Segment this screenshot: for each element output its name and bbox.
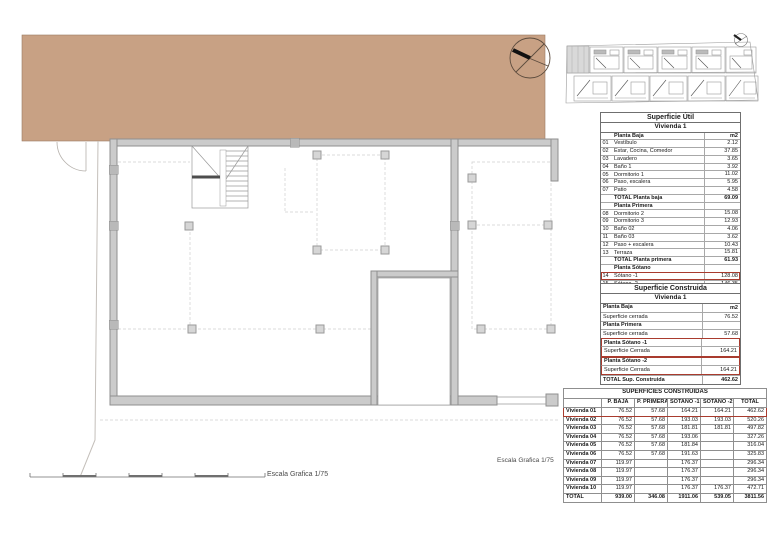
cell-sotano-2: [701, 468, 734, 477]
cell-total: 296.34: [734, 459, 767, 468]
table-row: TOTAL Planta baja 69.09: [601, 194, 740, 202]
row-label: Sótano -1: [614, 273, 704, 280]
cell-sotano-2: [701, 433, 734, 442]
col-header: SÓTANO -1: [668, 398, 701, 408]
row-label: Planta Sótano: [614, 265, 704, 272]
cell-sotano-1: 193.06: [668, 433, 701, 442]
table-row: Planta Sótano -1: [601, 338, 740, 346]
row-value: 12.93: [704, 218, 740, 225]
row-label: Dormitorio 2: [614, 211, 704, 218]
table-row: 10 Baño 02 4.06: [601, 225, 740, 233]
table-row: Vivienda 06 76.52 57.68 191.63 325.83: [564, 450, 767, 459]
table-row: Superficie Cerrada 164.21: [601, 346, 740, 356]
row-value: 76.52: [702, 313, 740, 321]
dashed-guides: [100, 155, 560, 420]
row-name: Vivienda 02: [564, 416, 602, 425]
table-subtitle: Vivienda 1: [601, 294, 740, 304]
table-row: Vivienda 10 119.97 176.37 176.37 472.71: [564, 485, 767, 494]
table-title: Superficie Útil: [601, 113, 740, 123]
row-value: 164.21: [701, 366, 739, 374]
cell-sotano-1: 176.37: [668, 459, 701, 468]
cell-total: 497.82: [734, 425, 767, 434]
row-name: Vivienda 01: [564, 408, 602, 417]
col-header: P. PRIMERA: [635, 398, 668, 408]
cell-total: 316.04: [734, 442, 767, 451]
table-row: 01 Vestíbulo 2.12: [601, 139, 740, 147]
row-label: Planta Baja: [601, 304, 702, 311]
row-value: m2: [702, 304, 740, 312]
row-value: 15.08: [704, 210, 740, 217]
scale-bar: [30, 473, 265, 477]
row-value: [701, 358, 739, 365]
cell-p-baja: 76.52: [602, 408, 635, 417]
cell-sotano-2: 193.03: [701, 416, 734, 425]
row-name: TOTAL: [564, 493, 602, 502]
table-row: Planta Sótano: [601, 264, 740, 272]
row-value: 69.09: [704, 195, 740, 202]
table-row: Planta Primera: [601, 321, 740, 329]
table-row: 13 Terraza 15.81: [601, 248, 740, 256]
site-houses-top-row: [590, 47, 756, 73]
row-value: 15.81: [704, 249, 740, 256]
cell-p-primera: 57.68: [635, 450, 668, 459]
cell-total: 462.62: [734, 408, 767, 417]
cell-sotano-2: [701, 459, 734, 468]
table-row: Vivienda 09 119.97 176.37 296.34: [564, 476, 767, 485]
row-label: Planta Sótano -1: [602, 340, 701, 347]
cell-sotano-2: 164.21: [701, 408, 734, 417]
cell-sotano-2: 181.81: [701, 425, 734, 434]
cell-p-primera: [635, 476, 668, 485]
row-label: Terraza: [614, 250, 704, 257]
table-row: Superficie Cerrada 164.21: [601, 365, 740, 375]
row-label: Vestíbulo: [614, 140, 704, 147]
table-row: 08 Dormitorio 2 15.08: [601, 209, 740, 217]
row-label: Baño 03: [614, 234, 704, 241]
row-number: 02: [601, 148, 614, 155]
cell-total: 472.71: [734, 485, 767, 494]
superficie-construida-table: Superficie Construida Vivienda 1 Planta …: [600, 283, 741, 385]
cell-p-primera: 346.08: [635, 493, 668, 502]
table-row: Vivienda 01 76.52 57.68 164.21 164.21 46…: [564, 408, 767, 417]
cell-p-primera: 57.68: [635, 442, 668, 451]
row-value: 37.85: [704, 148, 740, 155]
row-number: 09: [601, 218, 614, 225]
row-label: Superficie Cerrada: [602, 367, 701, 374]
table-row: 12 Paso + escalera 10.43: [601, 241, 740, 249]
table-row: Vivienda 03 76.52 57.68 181.81 181.81 49…: [564, 425, 767, 434]
table-row: Vivienda 02 76.52 57.68 193.03 193.03 52…: [564, 416, 767, 425]
cell-total: 3811.56: [734, 493, 767, 502]
col-header: SÓTANO -2: [701, 398, 734, 408]
row-number: 07: [601, 187, 614, 194]
row-name: Vivienda 06: [564, 450, 602, 459]
table-row: Vivienda 05 76.52 57.68 181.84 316.04: [564, 442, 767, 451]
cell-p-primera: [635, 468, 668, 477]
cell-sotano-1: 181.81: [668, 425, 701, 434]
table-row: 03 Lavadero 3.65: [601, 155, 740, 163]
row-number: 08: [601, 211, 614, 218]
row-label: Planta Sótano -2: [602, 358, 701, 365]
cell-p-baja: 76.52: [602, 433, 635, 442]
cell-p-baja: 76.52: [602, 442, 635, 451]
table-row: Planta Primera: [601, 202, 740, 210]
cell-sotano-1: 176.37: [668, 485, 701, 494]
row-name: Vivienda 03: [564, 425, 602, 434]
site-plan: [566, 34, 758, 104]
row-value: 4.06: [704, 226, 740, 233]
row-value: [702, 322, 740, 329]
cell-p-primera: [635, 459, 668, 468]
cell-sotano-2: 176.37: [701, 485, 734, 494]
row-label: Dormitorio 1: [614, 172, 704, 179]
cell-sotano-2: 539.05: [701, 493, 734, 502]
cell-total: 327.26: [734, 433, 767, 442]
table-row: Planta Baja m2: [601, 304, 740, 312]
cell-p-baja: 76.52: [602, 416, 635, 425]
cell-p-baja: 76.52: [602, 450, 635, 459]
row-label: Planta Primera: [614, 203, 704, 210]
row-value: 462.62: [702, 376, 740, 384]
table-title: Superficie Construida: [601, 284, 740, 294]
table-row: 05 Dormitorio 1 11.02: [601, 170, 740, 178]
cell-p-primera: [635, 485, 668, 494]
row-name: Vivienda 04: [564, 433, 602, 442]
cell-p-primera: 57.68: [635, 425, 668, 434]
table-row: 04 Baño 1 3.92: [601, 163, 740, 171]
cell-sotano-2: [701, 442, 734, 451]
summary-title-row: SUPERFICIES CONSTRUIDAS: [564, 389, 767, 399]
row-label: Lavadero: [614, 156, 704, 163]
cell-p-baja: 939.00: [602, 493, 635, 502]
row-value: 2.12: [704, 140, 740, 147]
row-label: TOTAL Planta primera: [614, 257, 704, 264]
cell-p-baja: 119.97: [602, 468, 635, 477]
row-value: m2: [704, 133, 740, 140]
table-row: Superficie cerrada 57.68: [601, 329, 740, 338]
cell-sotano-1: 164.21: [668, 408, 701, 417]
row-value: 3.92: [704, 164, 740, 171]
cell-total: 325.83: [734, 450, 767, 459]
cell-sotano-1: 181.84: [668, 442, 701, 451]
cell-p-baja: 76.52: [602, 425, 635, 434]
summary-title: SUPERFICIES CONSTRUIDAS: [564, 389, 767, 399]
table-row: Vivienda 08 119.97 176.37 296.34: [564, 468, 767, 477]
row-label: Patio: [614, 187, 704, 194]
row-number: 05: [601, 172, 614, 179]
cell-p-primera: 57.68: [635, 416, 668, 425]
row-name: Vivienda 07: [564, 459, 602, 468]
row-label: Planta Baja: [614, 133, 704, 140]
row-number: 14: [601, 273, 614, 280]
scale-label-bottom: Escala Grafica 1/75: [267, 471, 328, 478]
cell-sotano-2: [701, 476, 734, 485]
table-row: 02 Estar, Cocina, Comedor 37.85: [601, 147, 740, 155]
row-value: 3.62: [704, 234, 740, 241]
cell-p-baja: 119.97: [602, 476, 635, 485]
row-value: 57.68: [702, 330, 740, 338]
north-arrow-icon: [734, 34, 748, 47]
row-value: 11.02: [704, 171, 740, 178]
table-row: TOTAL Sup. Construida 462.62: [601, 375, 740, 384]
scale-label-right: Escala Grafica 1/75: [497, 457, 554, 464]
row-value: 5.95: [704, 179, 740, 186]
table-row: TOTAL 939.00 346.08 1911.06 539.05 3811.…: [564, 493, 767, 502]
row-value: [704, 203, 740, 210]
table-row: 06 Paso, escalera 5.95: [601, 178, 740, 186]
row-label: TOTAL Planta baja: [614, 195, 704, 202]
site-boundary-line: [80, 141, 98, 477]
row-value: 164.21: [701, 347, 739, 355]
row-number: 11: [601, 234, 614, 241]
table-row: 11 Baño 03 3.62: [601, 233, 740, 241]
cell-total: 520.26: [734, 416, 767, 425]
columns: [185, 151, 555, 333]
row-label: Superficie cerrada: [601, 314, 702, 321]
cell-sotano-1: 191.63: [668, 450, 701, 459]
cell-total: 296.34: [734, 476, 767, 485]
row-number: 04: [601, 164, 614, 171]
cell-total: 296.34: [734, 468, 767, 477]
walls: [110, 139, 558, 406]
row-label: Baño 1: [614, 164, 704, 171]
row-value: [704, 265, 740, 272]
row-name: Vivienda 05: [564, 442, 602, 451]
summary-header-row: P. BAJA P. PRIMERA SÓTANO -1 SÓTANO -2 T…: [564, 398, 767, 408]
cell-p-primera: 57.68: [635, 408, 668, 417]
cell-sotano-1: 176.37: [668, 476, 701, 485]
table-row: Planta Baja m2: [601, 133, 740, 140]
row-value: 61.93: [704, 257, 740, 264]
col-header: TOTAL: [734, 398, 767, 408]
row-label: Paso, escalera: [614, 179, 704, 186]
site-houses-bottom-row: [574, 76, 758, 101]
table-row: Vivienda 07 119.97 176.37 296.34: [564, 459, 767, 468]
table-row: 09 Dormitorio 3 12.93: [601, 217, 740, 225]
row-label: Baño 02: [614, 226, 704, 233]
row-label: Paso + escalera: [614, 242, 704, 249]
row-value: 128.08: [704, 273, 740, 280]
row-number: 12: [601, 242, 614, 249]
roof-band: [22, 35, 545, 141]
row-value: 4.58: [704, 187, 740, 194]
row-value: 10.43: [704, 242, 740, 249]
col-header: P. BAJA: [602, 398, 635, 408]
table-row: Superficie cerrada 76.52: [601, 312, 740, 321]
superficie-util-table: Superficie Útil Vivienda 1 Planta Baja m…: [600, 112, 741, 296]
cell-p-baja: 119.97: [602, 485, 635, 494]
row-name: Vivienda 10: [564, 485, 602, 494]
cell-sotano-1: 193.03: [668, 416, 701, 425]
superficies-construidas-summary-table: SUPERFICIES CONSTRUIDAS P. BAJA P. PRIME…: [563, 388, 767, 503]
row-name: Vivienda 08: [564, 468, 602, 477]
interior-room: [378, 278, 450, 405]
row-number: 01: [601, 140, 614, 147]
cell-p-primera: 57.68: [635, 433, 668, 442]
row-number: 03: [601, 156, 614, 163]
wall-thin-extensions: [497, 397, 546, 404]
row-value: [701, 339, 739, 346]
row-label: Superficie Cerrada: [602, 348, 701, 355]
row-number: 06: [601, 179, 614, 186]
cell-sotano-1: 176.37: [668, 468, 701, 477]
row-label: Planta Primera: [601, 322, 702, 329]
staircase: [192, 146, 248, 208]
col-header: [564, 398, 602, 408]
row-label: TOTAL Sup. Construida: [601, 377, 702, 384]
door-arc-icon: [57, 142, 86, 171]
table-row: 14 Sótano -1 128.08: [601, 272, 740, 280]
row-number: 13: [601, 250, 614, 257]
cell-sotano-2: [701, 450, 734, 459]
row-label: Dormitorio 3: [614, 218, 704, 225]
cell-p-baja: 119.97: [602, 459, 635, 468]
table-row: Planta Sótano -2: [601, 357, 740, 365]
row-number: 10: [601, 226, 614, 233]
table-row: Vivienda 04 76.52 57.68 193.06 327.26: [564, 433, 767, 442]
table-row: TOTAL Planta primera 61.93: [601, 256, 740, 264]
table-subtitle: Vivienda 1: [601, 123, 740, 133]
row-value: 3.65: [704, 156, 740, 163]
row-name: Vivienda 09: [564, 476, 602, 485]
cell-sotano-1: 1911.06: [668, 493, 701, 502]
row-label: Estar, Cocina, Comedor: [614, 148, 704, 155]
row-label: Superficie cerrada: [601, 331, 702, 338]
table-row: 07 Patio 4.58: [601, 186, 740, 194]
